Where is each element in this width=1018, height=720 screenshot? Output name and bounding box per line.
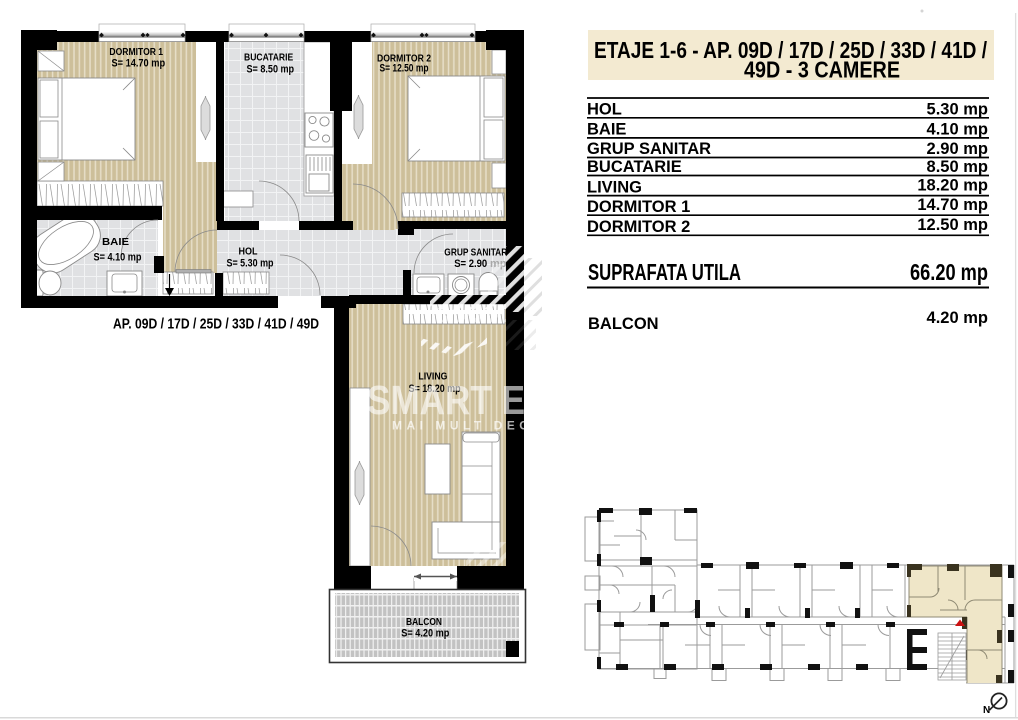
svg-text:S= 14.70 mp: S= 14.70 mp	[112, 58, 166, 70]
svg-text:S= 4.10 mp: S= 4.10 mp	[94, 252, 142, 264]
svg-text:8.50 mp: 8.50 mp	[927, 158, 988, 176]
svg-text:66.20 mp: 66.20 mp	[910, 259, 988, 285]
svg-text:S= 5.30 mp: S= 5.30 mp	[227, 258, 274, 270]
svg-text:BALCON: BALCON	[406, 617, 442, 628]
svg-text:S= 12.50 mp: S= 12.50 mp	[380, 63, 429, 75]
svg-text:BUCATARIE: BUCATARIE	[244, 53, 293, 64]
svg-text:BALCON: BALCON	[588, 315, 659, 333]
svg-text:DORMITOR 2: DORMITOR 2	[587, 218, 690, 236]
svg-text:SMART E: SMART E	[367, 377, 525, 423]
svg-text:S= 8.50 mp: S= 8.50 mp	[247, 64, 295, 76]
svg-text:5.30 mp: 5.30 mp	[927, 101, 988, 119]
svg-text:BAIE: BAIE	[102, 237, 129, 248]
svg-text:GRUP SANITAR: GRUP SANITAR	[444, 248, 508, 259]
svg-text:MAI MULT DECÂT IM: MAI MULT DECÂT IM	[392, 418, 588, 433]
svg-text:S= 2.90: S= 2.90	[454, 258, 487, 270]
svg-text:2.90 mp: 2.90 mp	[927, 140, 988, 158]
svg-text:SUPRAFATA UTILA: SUPRAFATA UTILA	[588, 259, 741, 285]
svg-text:AP. 09D / 17D / 25D / 33D / 4: AP. 09D / 17D / 25D / 33D / 41D / 49D	[113, 316, 319, 333]
svg-text:BUCATARIE: BUCATARIE	[587, 158, 682, 176]
svg-text:DORMITOR 1: DORMITOR 1	[587, 198, 690, 216]
svg-text:LIVING: LIVING	[587, 178, 642, 196]
svg-text:GRUP SANITAR: GRUP SANITAR	[587, 140, 711, 158]
svg-text:4.10 mp: 4.10 mp	[927, 121, 988, 139]
svg-text:12.50 mp: 12.50 mp	[917, 216, 988, 234]
svg-text:DORMITOR 1: DORMITOR 1	[109, 47, 163, 58]
svg-text:14.70 mp: 14.70 mp	[917, 196, 988, 214]
svg-text:BAIE: BAIE	[587, 121, 626, 139]
svg-text:49D - 3 CAMERE: 49D - 3 CAMERE	[744, 57, 900, 83]
svg-text:HOL: HOL	[587, 101, 622, 119]
svg-text:18.20 mp: 18.20 mp	[917, 176, 988, 194]
svg-text:S= 4.20 mp: S= 4.20 mp	[401, 628, 449, 640]
svg-text:4.20 mp: 4.20 mp	[927, 309, 988, 327]
svg-text:N: N	[983, 705, 990, 716]
svg-text:HOL: HOL	[239, 247, 258, 258]
